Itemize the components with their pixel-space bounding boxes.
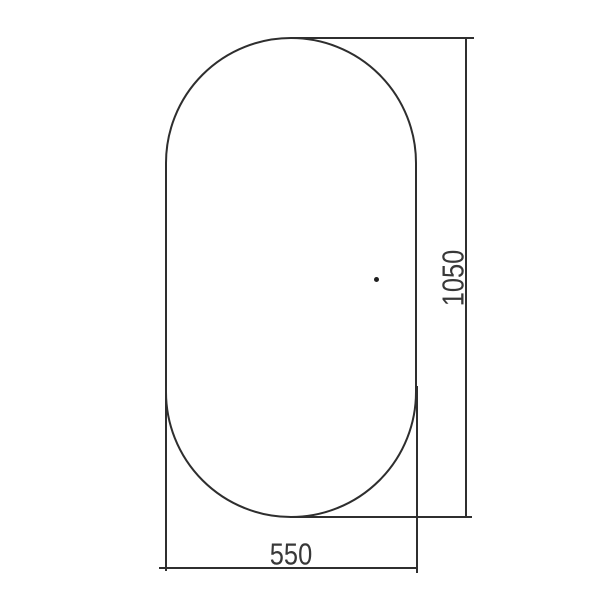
dimension-drawing-canvas: 550 1050 [0, 0, 600, 600]
capsule-shape-outline [165, 37, 417, 518]
height-extension-line-bottom [290, 516, 472, 518]
height-extension-line-top [292, 37, 474, 39]
width-extension-line-left [165, 386, 167, 571]
width-dimension-label: 550 [270, 539, 312, 570]
width-extension-line-right [416, 386, 418, 573]
height-dimension-label: 1050 [438, 250, 469, 307]
sensor-dot [374, 277, 379, 282]
